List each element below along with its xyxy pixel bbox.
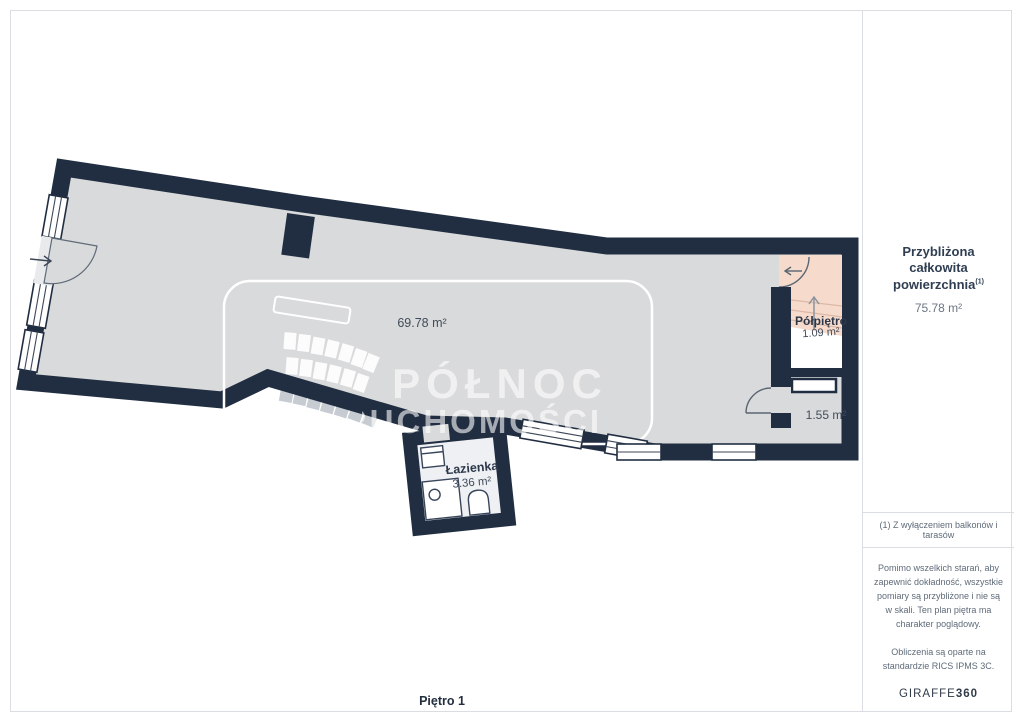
floor-plan-page: { "plan": { "floor_label": "Piętro 1", "…: [0, 0, 1024, 724]
disclaimer-text: Pomimo wszelkich starań, aby zapewnić do…: [873, 562, 1004, 632]
brand-name: GIRAFFE: [899, 688, 956, 700]
footnote-marker: (1): [975, 278, 984, 285]
total-area-value: 75.78 m²: [875, 301, 1002, 315]
standard-note: Obliczenia są oparte na standardzie RICS…: [873, 646, 1004, 674]
wall-recess: [792, 379, 836, 392]
total-area-section: Przybliżona całkowita powierzchnia(1) 75…: [863, 10, 1014, 513]
wall-stub: [281, 213, 315, 258]
sidebar: Przybliżona całkowita powierzchnia(1) 75…: [862, 10, 1014, 712]
brand-suffix: 360: [956, 688, 978, 700]
footnote-text: (1) Z wyłączeniem balkonów i tarasów: [871, 520, 1006, 540]
watermark-line2: NIERUCHOMOŚCI: [362, 403, 602, 441]
disclaimer-section: Pomimo wszelkich starań, aby zapewnić do…: [863, 548, 1014, 712]
footnote-section: (1) Z wyłączeniem balkonów i tarasów: [863, 513, 1014, 548]
total-area-title: Przybliżona całkowita powierzchnia(1): [875, 244, 1002, 293]
main-room-area: 69.78 m²: [380, 316, 464, 331]
small-room-area: 1.55 m²: [798, 408, 854, 422]
floor-plan-canvas: PÓŁNOC NIERUCHOMOŚCI 69.78 m² Łazienka 3…: [10, 10, 862, 712]
floor-name: Piętro 1: [380, 694, 504, 708]
watermark-line1: PÓŁNOC: [388, 360, 612, 408]
brand-logo: GIRAFFE360: [873, 688, 1004, 700]
toilet: [467, 489, 489, 515]
total-area-title-line2: powierzchnia: [893, 277, 975, 292]
total-area-title-line1: Przybliżona całkowita: [902, 244, 974, 275]
